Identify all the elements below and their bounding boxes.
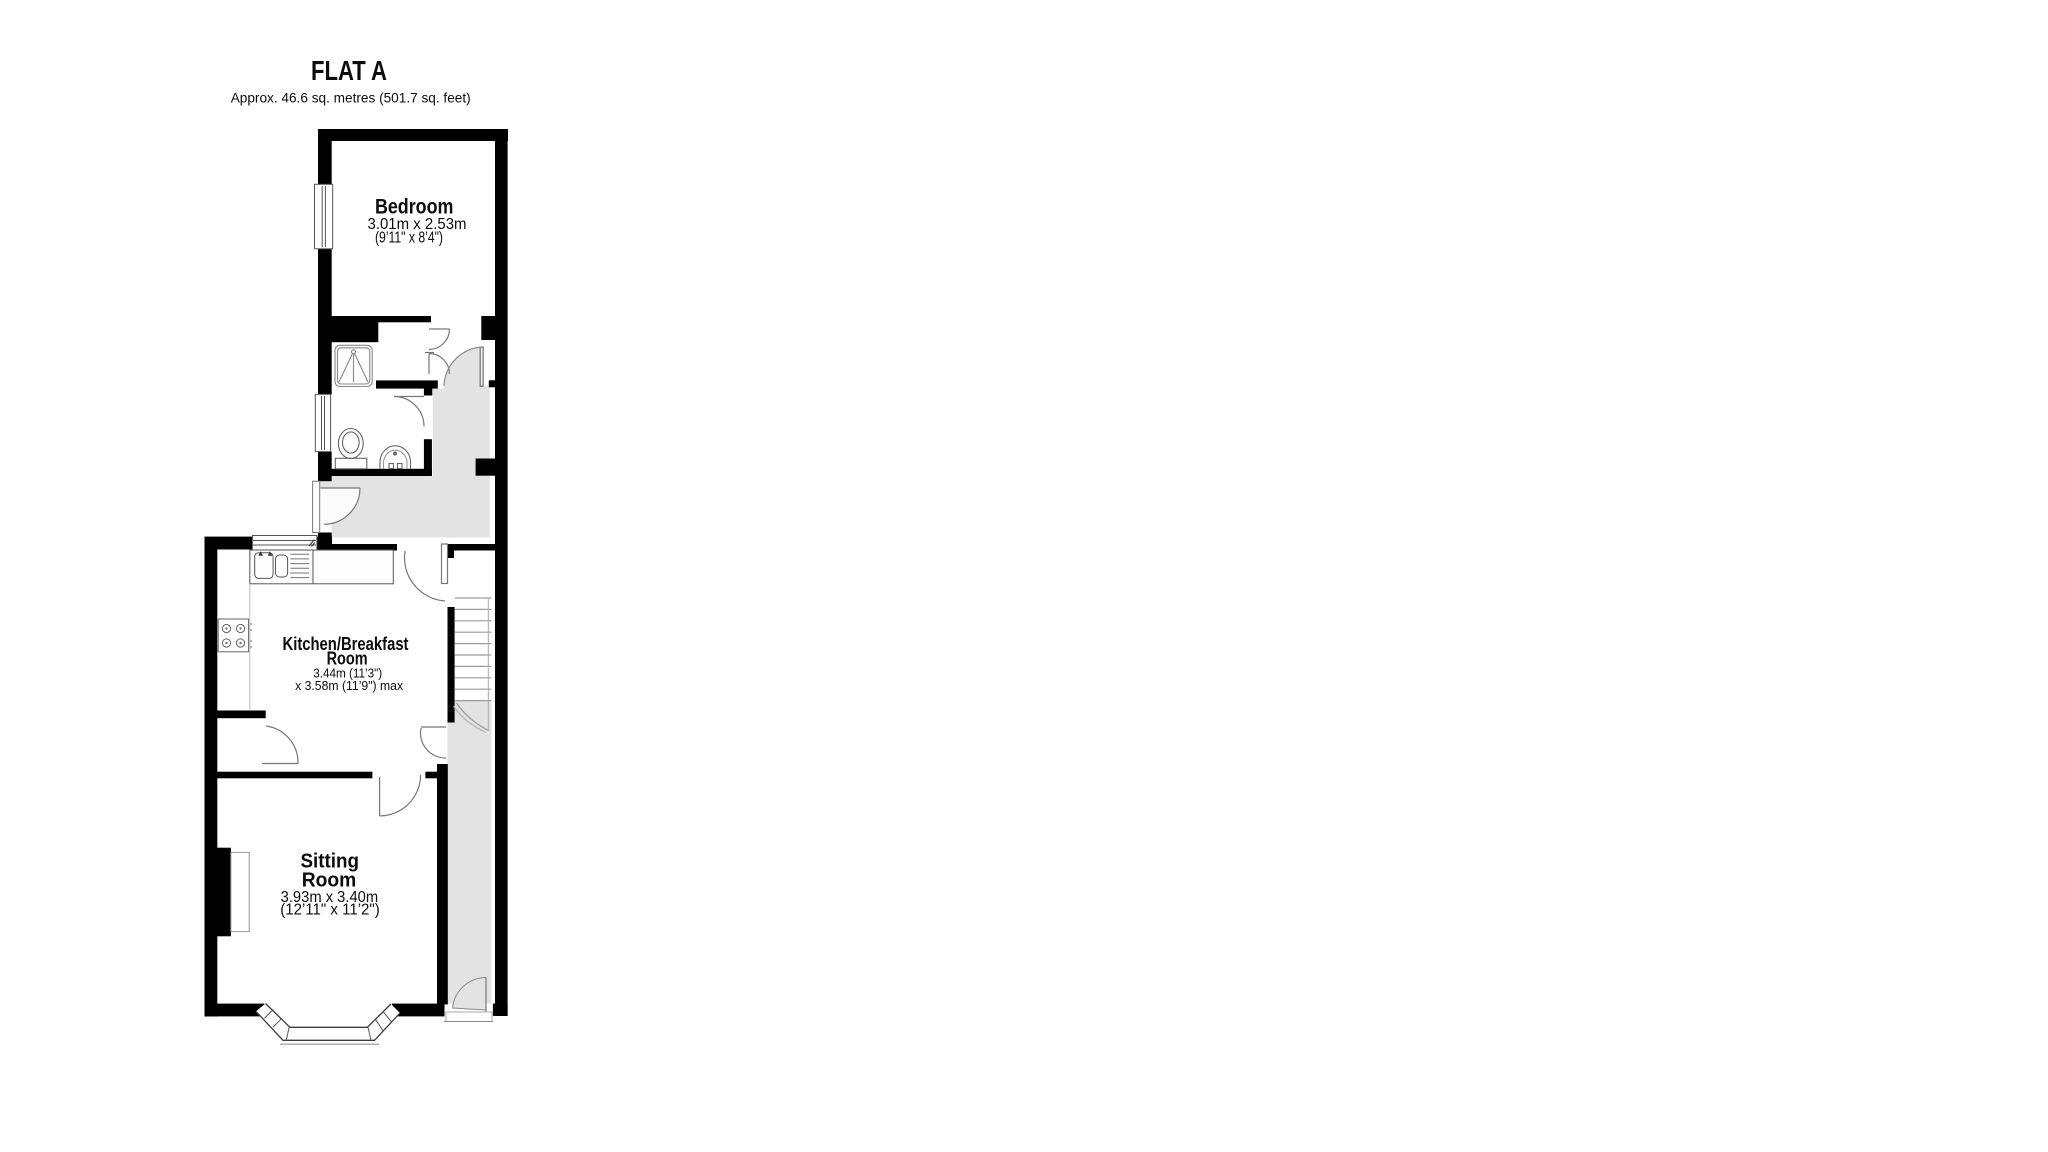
svg-text:(12’11" x 11’2"): (12’11" x 11’2") <box>280 901 380 918</box>
svg-text:x 3.58m (11’9") max: x 3.58m (11’9") max <box>295 678 403 693</box>
svg-text:Approx. 46.6 sq. metres (501.7: Approx. 46.6 sq. metres (501.7 sq. feet) <box>231 90 471 106</box>
svg-text:FLAT A: FLAT A <box>311 55 387 86</box>
svg-text:(9’11" x 8’4"): (9’11" x 8’4") <box>375 229 443 246</box>
